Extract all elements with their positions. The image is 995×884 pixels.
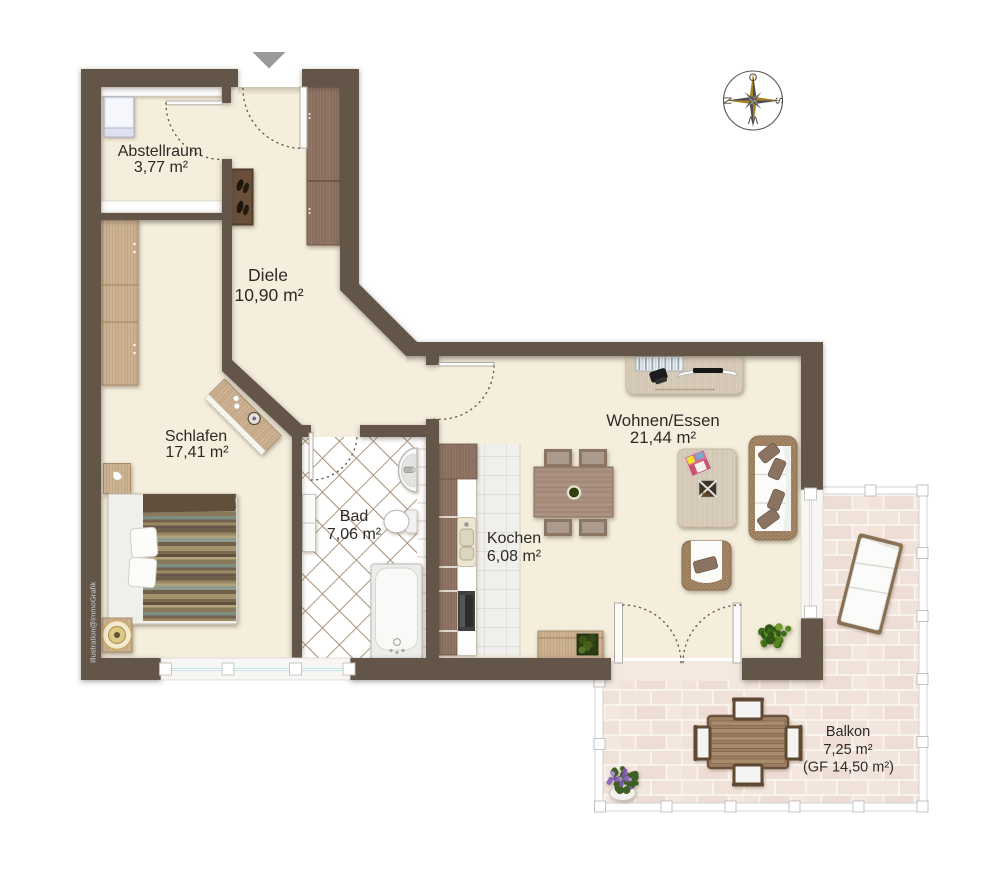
svg-text:3,77 m²: 3,77 m² [134,159,189,176]
svg-text:17,41 m²: 17,41 m² [165,444,229,461]
svg-text:Illustration@immoGrafik: Illustration@immoGrafik [89,582,98,663]
svg-text:(GF 14,50 m²): (GF 14,50 m²) [803,760,894,776]
svg-text:Diele: Diele [248,265,288,285]
svg-text:10,90 m²: 10,90 m² [234,285,303,305]
svg-text:21,44 m²: 21,44 m² [630,428,697,447]
svg-text:Balkon: Balkon [826,724,870,740]
svg-text:7,06 m²: 7,06 m² [327,526,382,543]
svg-text:Bad: Bad [340,508,368,525]
svg-text:6,08 m²: 6,08 m² [487,548,542,565]
svg-text:W: W [747,114,758,126]
svg-text:S: S [773,97,785,104]
svg-text:O: O [749,72,758,84]
svg-text:Kochen: Kochen [487,530,541,547]
svg-text:Schlafen: Schlafen [165,428,227,445]
svg-text:7,25 m²: 7,25 m² [823,742,872,758]
svg-text:N: N [723,96,735,104]
svg-text:Abstellraum: Abstellraum [118,143,202,160]
